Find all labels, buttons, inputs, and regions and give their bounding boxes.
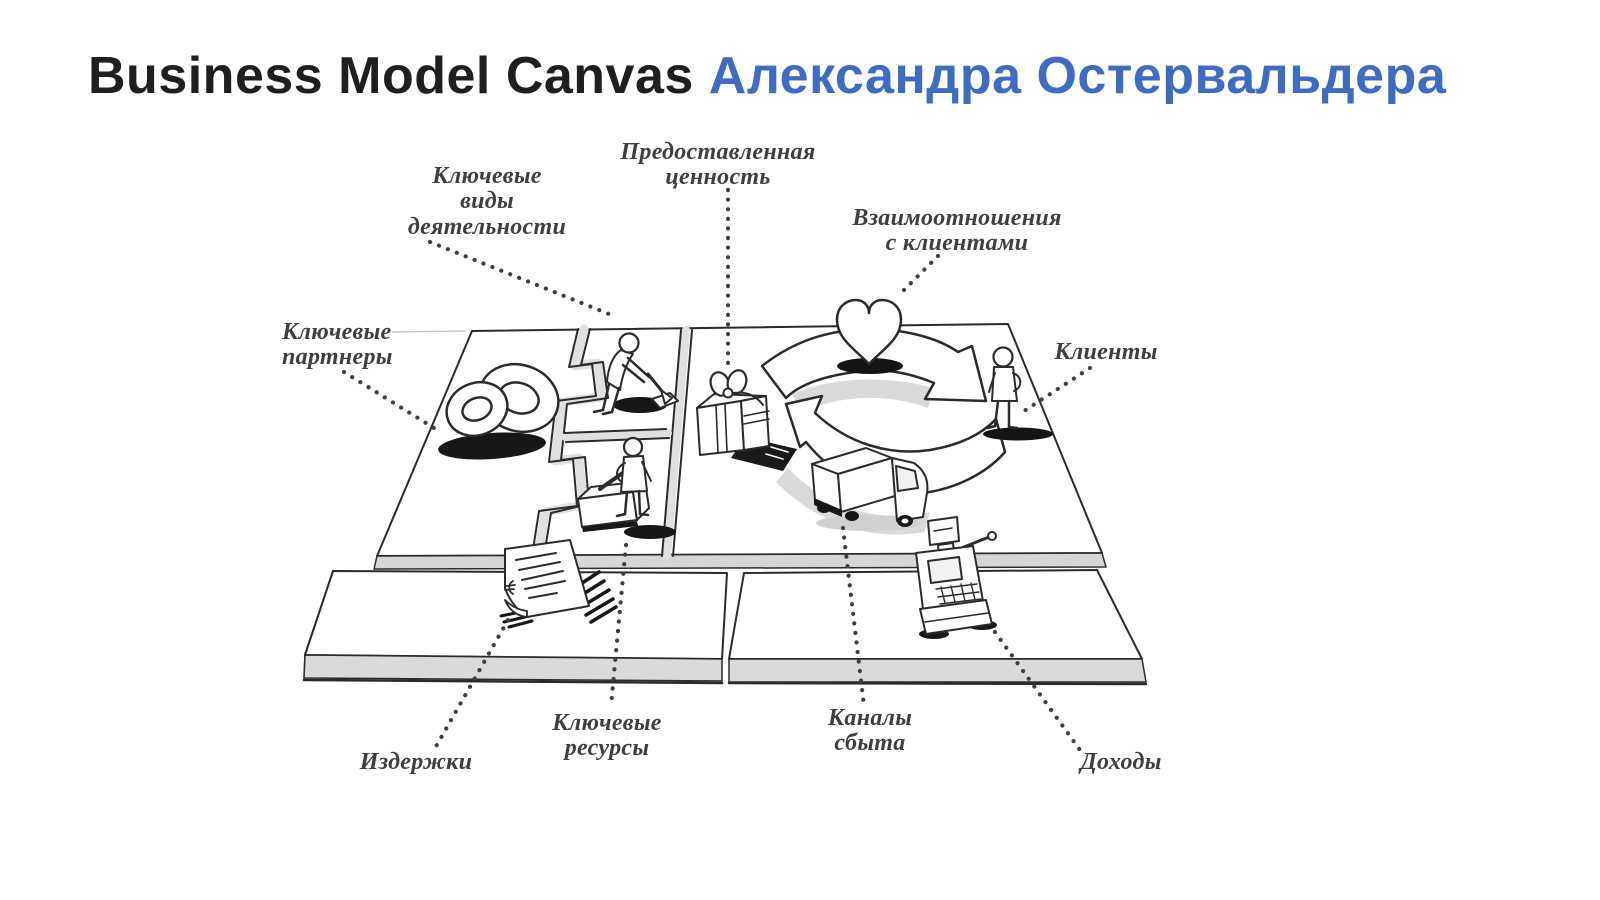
leader-key-activities <box>430 242 614 316</box>
guide-line <box>392 331 465 332</box>
label-sales-channels: Каналы сбыта <box>828 706 912 757</box>
label-key-resources: Ключевые ресурсы <box>552 711 661 762</box>
label-revenue: Доходы <box>1080 750 1161 775</box>
label-key-partners: Ключевые партнеры <box>282 320 393 371</box>
slide: { "title": { "product": "Business Model … <box>0 0 1600 900</box>
heart-icon <box>837 300 903 374</box>
leader-key-partners <box>344 372 434 428</box>
label-key-activities: Ключевые виды деятельности <box>408 164 566 240</box>
label-costs: Издержки <box>360 750 472 775</box>
bmc-illustration <box>0 0 1600 900</box>
label-value-proposition: Предоставленная ценность <box>620 140 815 191</box>
front-slabs <box>304 570 1146 684</box>
leader-customer-relationships <box>898 256 938 296</box>
label-customers: Клиенты <box>1054 340 1157 365</box>
canvas-base-edge <box>374 553 1106 569</box>
label-customer-relationships: Взаимоотношения с клиентами <box>852 206 1061 257</box>
